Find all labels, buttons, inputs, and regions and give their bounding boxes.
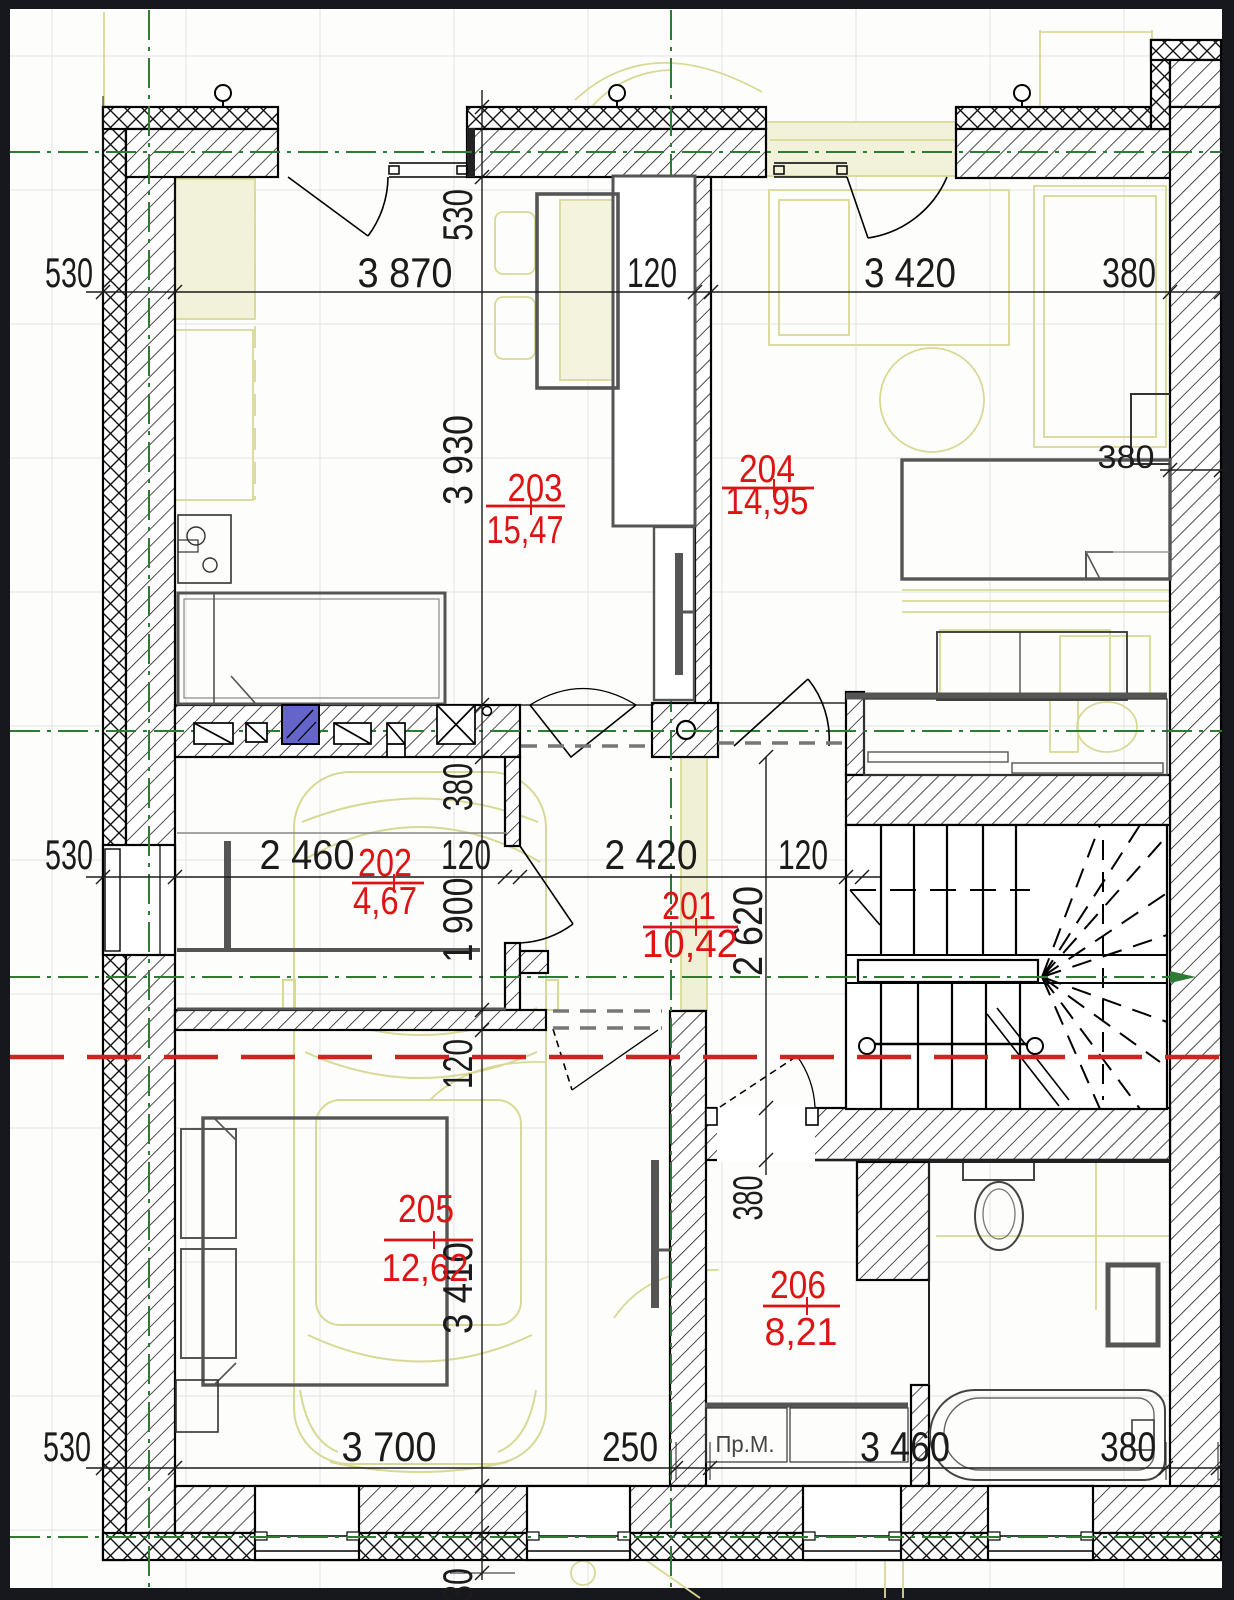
svg-text:250: 250: [602, 1423, 658, 1470]
svg-text:120: 120: [627, 249, 677, 296]
svg-text:3 420: 3 420: [864, 249, 956, 296]
svg-text:4,67: 4,67: [353, 880, 417, 923]
svg-text:205: 205: [398, 1188, 454, 1231]
svg-text:12,62: 12,62: [382, 1247, 469, 1290]
svg-text:Пр.М.: Пр.М.: [716, 1431, 775, 1457]
svg-text:30: 30: [434, 1568, 481, 1600]
svg-text:15,47: 15,47: [487, 509, 564, 552]
svg-text:2 460: 2 460: [260, 831, 355, 878]
svg-text:202: 202: [358, 842, 412, 885]
svg-text:120: 120: [434, 1039, 481, 1089]
svg-text:380: 380: [1098, 439, 1155, 475]
svg-text:530: 530: [43, 1423, 91, 1470]
svg-text:120: 120: [441, 831, 491, 878]
svg-text:10,42: 10,42: [642, 923, 738, 966]
svg-text:3 930: 3 930: [434, 415, 481, 505]
svg-text:3 700: 3 700: [342, 1423, 437, 1470]
svg-text:14,95: 14,95: [726, 480, 809, 523]
svg-text:380: 380: [1102, 249, 1156, 296]
svg-text:530: 530: [45, 831, 93, 878]
svg-text:1 900: 1 900: [434, 878, 481, 963]
svg-text:206: 206: [770, 1264, 826, 1307]
svg-text:3 870: 3 870: [358, 249, 453, 296]
svg-text:201: 201: [662, 885, 716, 928]
svg-text:3 460: 3 460: [860, 1423, 950, 1470]
svg-text:380: 380: [434, 763, 481, 811]
svg-text:8,21: 8,21: [765, 1311, 838, 1354]
svg-text:530: 530: [45, 249, 93, 296]
svg-text:380: 380: [1100, 1423, 1156, 1470]
svg-text:203: 203: [508, 467, 563, 510]
svg-text:530: 530: [434, 189, 481, 241]
svg-text:2 420: 2 420: [605, 831, 698, 878]
svg-text:120: 120: [778, 831, 828, 878]
svg-text:380: 380: [724, 1176, 771, 1221]
